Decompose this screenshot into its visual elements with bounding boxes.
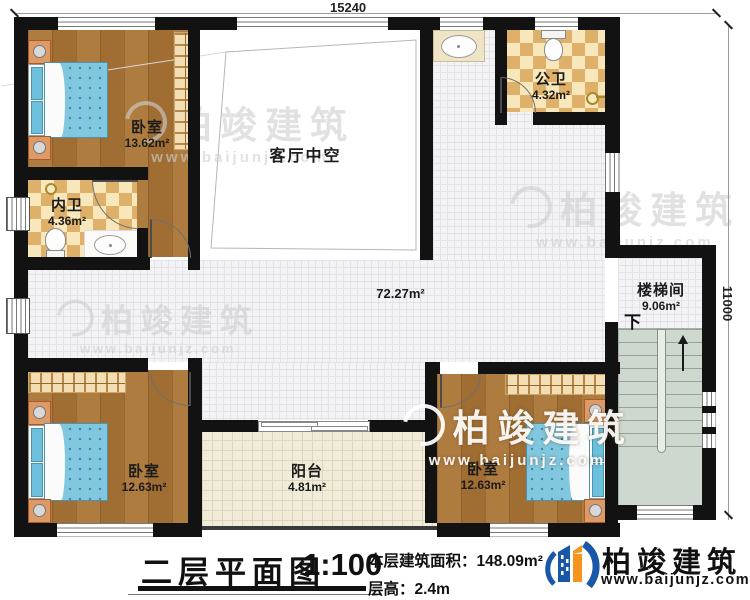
window — [58, 17, 155, 30]
wardrobe — [505, 374, 607, 395]
toilet-icon — [45, 228, 66, 252]
wall-segment — [605, 245, 716, 258]
window — [535, 17, 578, 30]
room-label-bedroom-br: 卧室 12.63m² — [433, 462, 533, 492]
title-underline — [138, 586, 366, 591]
bath-counter — [84, 230, 139, 259]
bed-sheet — [45, 424, 65, 500]
wall-segment — [14, 257, 150, 270]
faucet-dot — [109, 244, 112, 247]
lamp-icon — [33, 504, 46, 517]
wall-segment — [420, 17, 433, 260]
floor-height-text: 层高：2.4m — [368, 577, 450, 599]
bed-headboard — [28, 64, 45, 136]
watermark-logo-icon — [502, 178, 560, 236]
headboard-panel — [31, 101, 43, 134]
window — [702, 434, 716, 448]
brand-website: www.baijunjz.com — [601, 572, 750, 588]
wall-segment — [533, 112, 620, 125]
dimension-line — [728, 25, 729, 520]
bed-sheet — [45, 63, 65, 137]
window — [702, 392, 716, 406]
room-label-bedroom-bl: 卧室 12.63m² — [94, 464, 194, 494]
wardrobe-rod — [29, 383, 125, 384]
wall-segment — [605, 17, 620, 258]
wall-segment — [28, 358, 148, 372]
headboard-panel — [31, 67, 43, 100]
dimension-height: 11000 — [720, 286, 735, 321]
nightstand — [28, 40, 51, 64]
stair-down-label: 下 — [624, 308, 641, 333]
watermark-logo-icon — [394, 396, 452, 454]
stair-arrow-shaft — [682, 343, 684, 371]
wall-segment — [137, 228, 148, 257]
wardrobe-rod — [506, 385, 606, 386]
window — [6, 298, 30, 334]
sliding-panel — [261, 422, 318, 427]
watermark: 柏竣建筑 www.baijunjz.com — [52, 294, 263, 356]
lamp-icon — [33, 406, 46, 419]
title-underline-thin — [128, 594, 376, 595]
window — [490, 523, 548, 537]
watermark-logo-icon — [50, 292, 101, 343]
wall-segment — [14, 167, 148, 180]
room-label-living-void: 客厅中空 — [233, 148, 378, 166]
watermark: 柏竣建筑 www.baijunjz.com — [400, 398, 635, 469]
watermark-site: www.baijunjz.com — [80, 342, 236, 357]
dimension-line — [14, 13, 716, 14]
window — [605, 153, 620, 192]
balcony-railing — [202, 526, 437, 530]
window — [440, 17, 483, 30]
wardrobe — [28, 372, 126, 393]
wall-segment — [14, 17, 28, 537]
watermark-name: 柏竣建筑 — [560, 180, 740, 234]
stair-divider — [657, 329, 666, 453]
watermark-name: 柏竣建筑 — [453, 398, 633, 452]
sink-icon — [94, 235, 126, 255]
window — [637, 505, 693, 520]
ceiling-lamp-icon — [45, 183, 57, 195]
sink-icon — [441, 35, 477, 58]
headboard-panel — [31, 428, 43, 462]
window — [702, 413, 716, 427]
bed-headboard — [28, 425, 45, 499]
room-label-public-bath: 公卫 4.32m² — [509, 72, 593, 102]
headboard-panel — [31, 463, 43, 497]
sliding-panel — [311, 426, 368, 431]
room-label-balcony: 阳台 4.81m² — [257, 464, 357, 494]
brand-logo-icon — [543, 537, 601, 591]
watermark: 柏竣建筑 www.baijunjz.com — [495, 180, 750, 251]
hall-vanity — [433, 30, 485, 62]
window — [57, 523, 153, 537]
wall-segment — [202, 420, 258, 432]
nightstand — [28, 401, 51, 425]
room-label-bedroom-tl: 卧室 13.62m² — [97, 120, 197, 150]
floor-plan-sheet: 柏竣建筑 www.baijunjz.com 柏竣建筑 www.baijunjz.… — [0, 0, 750, 600]
watermark-name: 柏竣建筑 — [101, 294, 259, 342]
wall-segment — [478, 362, 620, 374]
lamp-icon — [33, 45, 46, 58]
hall-area-label: 72.27m² — [348, 287, 453, 302]
lamp-icon — [33, 141, 46, 154]
faucet-dot — [457, 45, 460, 48]
balcony-sliding-door — [258, 421, 370, 432]
nightstand — [28, 136, 51, 160]
window — [237, 17, 388, 30]
toilet-icon — [544, 38, 563, 61]
floor-area-text: 本层建筑面积：148.09m² — [368, 549, 543, 571]
nightstand — [584, 499, 607, 523]
nightstand — [28, 499, 51, 523]
lamp-icon — [589, 504, 602, 517]
room-label-inner-bath: 内卫 4.36m² — [25, 198, 109, 228]
watermark-name: 柏竣建筑 — [175, 95, 355, 149]
